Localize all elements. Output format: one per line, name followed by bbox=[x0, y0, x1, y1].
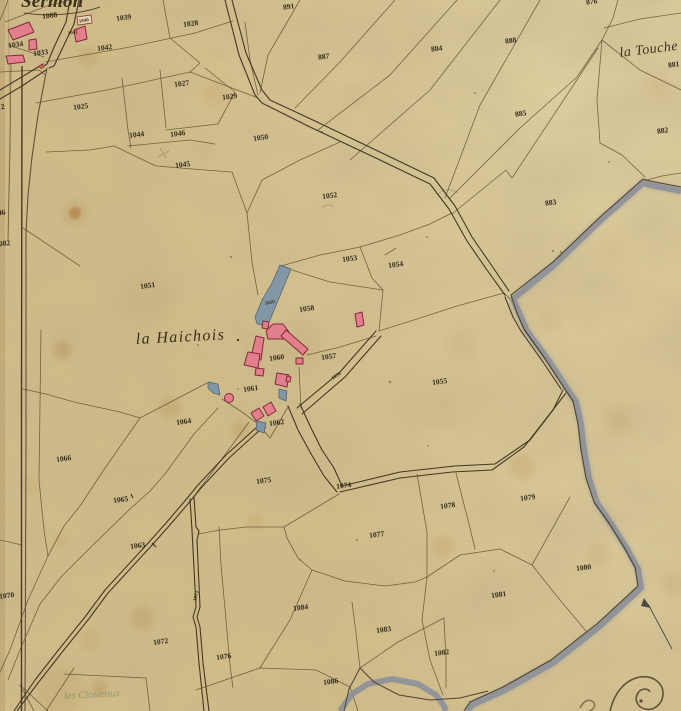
svg-text:891: 891 bbox=[282, 1, 295, 12]
svg-text:881: 881 bbox=[667, 59, 680, 70]
svg-text:887: 887 bbox=[317, 51, 330, 62]
svg-text:888: 888 bbox=[504, 35, 517, 46]
svg-text:885: 885 bbox=[514, 108, 527, 119]
svg-text:882: 882 bbox=[656, 125, 669, 136]
svg-text:884: 884 bbox=[430, 43, 443, 54]
svg-text:883: 883 bbox=[544, 197, 557, 208]
